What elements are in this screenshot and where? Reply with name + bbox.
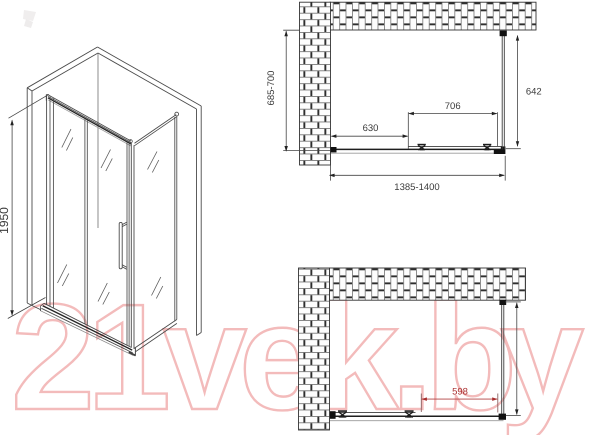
svg-text:1385-1400: 1385-1400 [394,182,439,193]
svg-text:706: 706 [445,101,461,112]
svg-text:1950: 1950 [0,207,11,234]
svg-text:685-700: 685-700 [266,71,277,106]
svg-text:598: 598 [452,387,468,398]
svg-text:642: 642 [526,86,542,97]
svg-text:630: 630 [363,123,379,134]
